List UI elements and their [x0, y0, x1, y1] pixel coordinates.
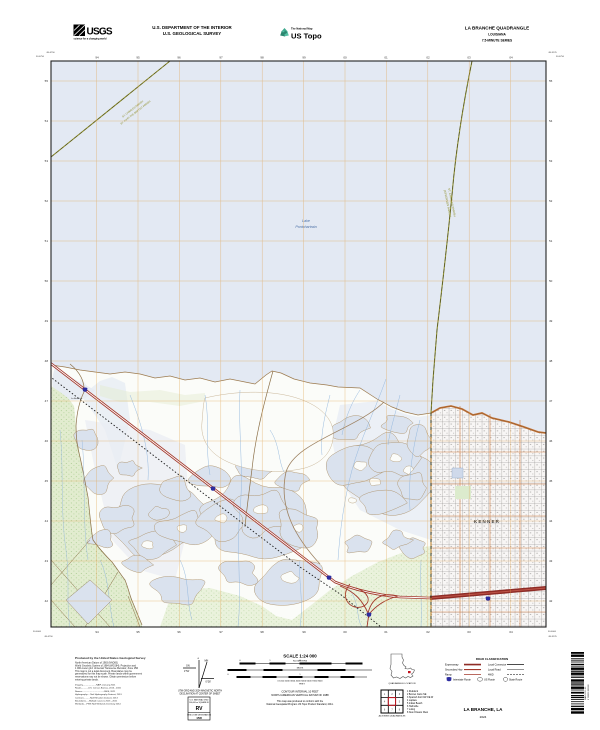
svg-text:53: 53 [45, 159, 49, 163]
svg-text:94: 94 [95, 630, 99, 634]
svg-text:LA BRANCHE QUADRANGLE: LA BRANCHE QUADRANGLE [465, 26, 529, 31]
svg-text:97: 97 [219, 56, 223, 60]
svg-text:Ramp: Ramp [445, 674, 452, 677]
svg-text:30.0750: 30.0750 [36, 56, 45, 58]
svg-text:42: 42 [45, 599, 49, 603]
svg-text:Lake: Lake [302, 219, 310, 223]
svg-text:9 780000 000000: 9 780000 000000 [588, 684, 590, 700]
svg-text:99: 99 [302, 630, 306, 634]
svg-text:RV: RV [196, 706, 204, 712]
svg-text:UTM GRID AND 2024 MAGNETIC NOR: UTM GRID AND 2024 MAGNETIC NORTH [178, 690, 222, 693]
svg-text:96: 96 [177, 630, 181, 634]
svg-text:01: 01 [384, 630, 388, 634]
svg-text:Local Road: Local Road [488, 669, 501, 672]
svg-text:8 New Orleans West: 8 New Orleans West [407, 711, 428, 714]
svg-text:50: 50 [549, 279, 553, 283]
svg-text:CONTOUR INTERVAL 10 FEET: CONTOUR INTERVAL 10 FEET [281, 690, 319, 694]
svg-text:Pontchartrain: Pontchartrain [295, 225, 316, 229]
svg-text:SCALE 1:24 000: SCALE 1:24 000 [283, 654, 317, 659]
svg-text:46: 46 [45, 439, 49, 443]
svg-text:3 Spanish Fort NW OE W: 3 Spanish Fort NW OE W [407, 696, 434, 699]
svg-text:50: 50 [45, 279, 49, 283]
svg-text:44: 44 [549, 519, 553, 523]
svg-text:-90.3125: -90.3125 [548, 636, 557, 638]
svg-text:Local Connector: Local Connector [488, 664, 506, 667]
svg-text:Roads...........U.S. Census Bu: Roads...........U.S. Census Bureau, 2015… [75, 687, 122, 690]
svg-text:02: 02 [426, 630, 430, 634]
svg-text:-90.4750: -90.4750 [44, 636, 53, 638]
svg-text:LA BRANCHE, LA: LA BRANCHE, LA [464, 707, 504, 712]
svg-text:01: 01 [384, 56, 388, 60]
svg-text:0 1000 2000 3000 4000 500: 0 1000 2000 3000 4000 5000 6000 7000 800… [277, 681, 323, 683]
svg-text:MILES: MILES [297, 667, 304, 669]
svg-text:La Branche: La Branche [71, 397, 83, 400]
svg-text:98: 98 [260, 56, 264, 60]
svg-text:51: 51 [549, 239, 553, 243]
svg-text:49: 49 [45, 319, 49, 323]
svg-text:Imagery......................N: Imagery......................NAIP, Janua… [75, 684, 116, 687]
svg-text:95: 95 [136, 630, 140, 634]
svg-text:Wetlands....FWS Natl Wetlands: Wetlands....FWS Natl Wetlands Inventory … [75, 703, 121, 706]
svg-text:42: 42 [549, 599, 553, 603]
svg-text:55: 55 [45, 79, 49, 83]
svg-text:QUADRANGLE LOCATION: QUADRANGLE LOCATION [389, 682, 416, 685]
svg-text:2024: 2024 [480, 715, 487, 719]
svg-text:ROAD CLASSIFICATION: ROAD CLASSIFICATION [476, 657, 508, 661]
svg-text:54: 54 [45, 119, 49, 123]
svg-text:1°52´: 1°52´ [184, 670, 190, 673]
svg-text:45: 45 [45, 479, 49, 483]
svg-text:45: 45 [549, 479, 553, 483]
svg-text:entering private lands.: entering private lands. [75, 678, 99, 681]
svg-text:30.0750: 30.0750 [556, 56, 565, 58]
svg-text:Boundaries.....Multiple source: Boundaries.....Multiple sources 2015 - 2… [75, 700, 118, 703]
svg-text:52: 52 [45, 199, 49, 203]
svg-text:00: 00 [343, 630, 347, 634]
svg-text:30.0000: 30.0000 [548, 631, 557, 633]
svg-text:Produced by the United States: Produced by the United States Geological… [75, 656, 146, 660]
svg-text:15R: 15R [196, 716, 202, 720]
svg-text:5 Indian Beach: 5 Indian Beach [407, 703, 423, 705]
svg-text:47: 47 [45, 399, 49, 403]
svg-text:LOUISIANA: LOUISIANA [488, 33, 506, 37]
svg-text:-90.4750: -90.4750 [46, 52, 55, 54]
svg-text:Interstate Route: Interstate Route [453, 679, 471, 682]
svg-text:State Route: State Route [509, 679, 523, 682]
svg-text:00: 00 [343, 56, 347, 60]
svg-text:FEET: FEET [299, 683, 305, 685]
svg-text:7 Luling: 7 Luling [407, 709, 416, 711]
svg-text:96: 96 [177, 56, 181, 60]
svg-text:The National Map: The National Map [291, 27, 313, 31]
svg-text:98: 98 [260, 630, 264, 634]
svg-text:USGS: USGS [87, 27, 113, 38]
svg-text:97: 97 [219, 630, 223, 634]
svg-text:science for a changing world: science for a changing world [74, 38, 107, 41]
svg-text:US Route: US Route [484, 679, 495, 682]
svg-text:55: 55 [549, 79, 553, 83]
svg-text:95: 95 [136, 56, 140, 60]
svg-text:National Geospatial Program US: National Geospatial Program US Topo Prod… [267, 703, 334, 706]
svg-text:-90.3125: -90.3125 [548, 52, 557, 54]
svg-text:54: 54 [549, 119, 553, 123]
svg-text:4WD: 4WD [488, 674, 494, 677]
svg-text:94: 94 [95, 56, 99, 60]
svg-text:52: 52 [549, 199, 553, 203]
svg-text:48: 48 [45, 359, 49, 363]
svg-text:03: 03 [467, 630, 471, 634]
svg-text:43: 43 [45, 559, 49, 563]
svg-text:ADJOINING QUADRANGLES: ADJOINING QUADRANGLES [379, 715, 406, 718]
svg-text:51: 51 [45, 239, 49, 243]
svg-text:U.S. DEPARTMENT OF THE INTERIO: U.S. DEPARTMENT OF THE INTERIOR [152, 25, 232, 30]
svg-text:44: 44 [45, 519, 49, 523]
svg-text:03: 03 [467, 56, 471, 60]
svg-text:46: 46 [549, 439, 553, 443]
svg-text:Expressway: Expressway [445, 664, 459, 667]
svg-text:47: 47 [549, 399, 553, 403]
svg-text:US Topo: US Topo [291, 32, 322, 41]
svg-text:NORTH AMERICAN VERTICAL DATUM: NORTH AMERICAN VERTICAL DATUM OF 1988 [271, 693, 329, 697]
svg-text:49: 49 [549, 319, 553, 323]
svg-text:43: 43 [549, 559, 553, 563]
svg-text:Hydrography.....Natl Hydrograp: Hydrography.....Natl Hydrography Dataset… [75, 693, 122, 696]
svg-text:04: 04 [509, 56, 513, 60]
svg-text:100,000-m SQUARE ID: 100,000-m SQUARE ID [189, 701, 210, 704]
svg-text:DECLINATION AT CENTER OF SHEET: DECLINATION AT CENTER OF SHEET [180, 692, 221, 695]
svg-text:Secondary Hwy: Secondary Hwy [445, 669, 463, 672]
svg-text:MN: MN [205, 660, 209, 663]
svg-text:30.0000: 30.0000 [33, 631, 42, 633]
svg-text:53: 53 [549, 159, 553, 163]
svg-text:48: 48 [549, 359, 553, 363]
svg-text:U.S. GEOLOGICAL SURVEY: U.S. GEOLOGICAL SURVEY [163, 31, 221, 36]
svg-text:1 Ruddock: 1 Ruddock [407, 691, 419, 693]
svg-text:04: 04 [509, 630, 513, 634]
svg-text:GN: GN [186, 665, 190, 668]
svg-text:Names.........................: Names...................................… [75, 691, 116, 693]
svg-text:6 Hahnville: 6 Hahnville [407, 706, 419, 708]
svg-text:2 Bonnet Carré NE: 2 Bonnet Carré NE [407, 693, 427, 696]
svg-text:7.5-MINUTE SERIES: 7.5-MINUTE SERIES [482, 39, 512, 43]
svg-text:02: 02 [426, 56, 430, 60]
svg-text:0°28´: 0°28´ [206, 681, 212, 684]
svg-text:KENNER: KENNER [474, 519, 500, 524]
svg-text:4 Laplace: 4 Laplace [407, 700, 418, 702]
svg-text:Contours..........Natl Elevati: Contours..........Natl Elevation Dataset… [75, 696, 118, 699]
svg-text:99: 99 [302, 56, 306, 60]
svg-text:ISBN 978-1-20: ISBN 978-1-20 [585, 686, 587, 700]
